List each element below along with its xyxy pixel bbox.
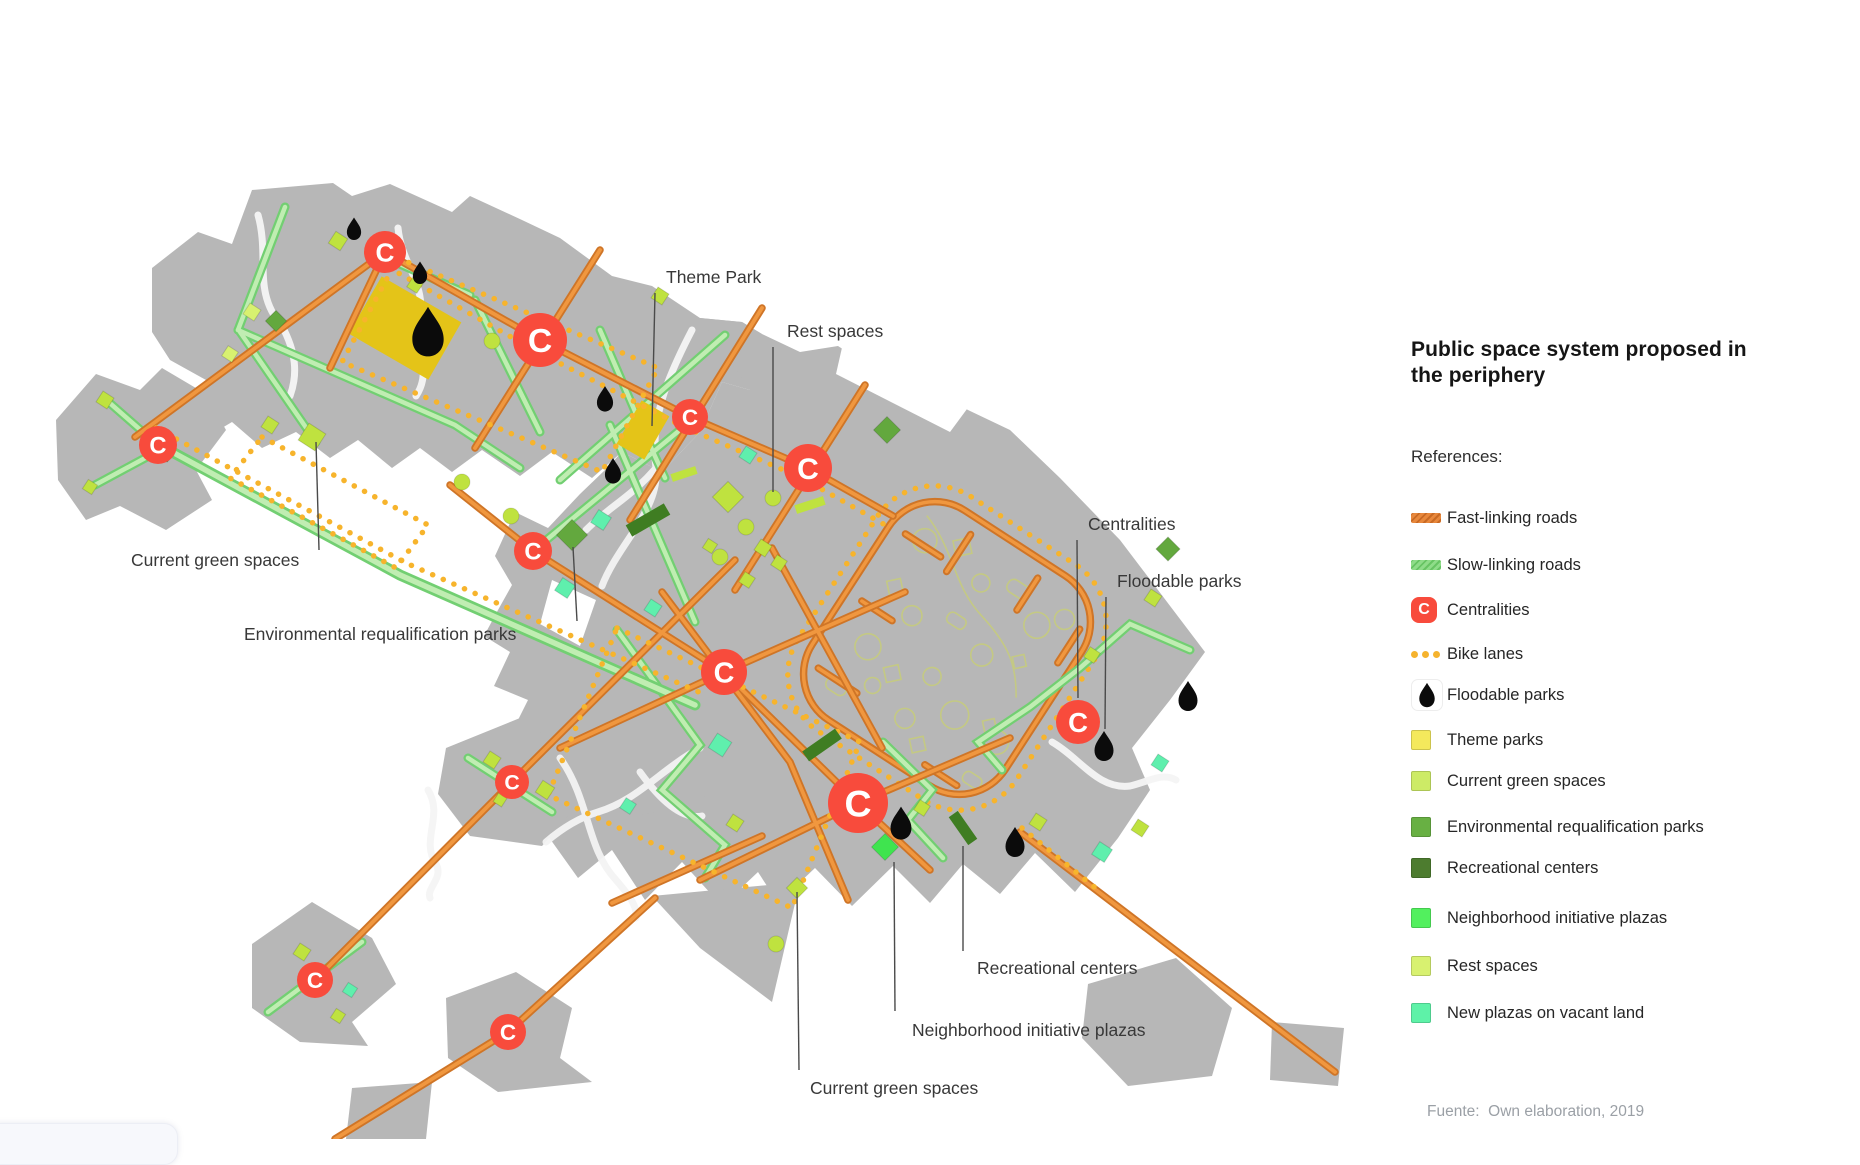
- square-swatch-box: [1411, 1003, 1447, 1023]
- road-swatch-box: [1411, 560, 1447, 570]
- legend-references-label: References:: [1411, 447, 1503, 467]
- legend-item-label: Current green spaces: [1447, 772, 1606, 791]
- annotation-leader-line: [1077, 540, 1078, 698]
- centrality-marker: C: [514, 532, 552, 570]
- environmental-park-square: [1156, 537, 1180, 561]
- centrality-letter: C: [149, 433, 166, 460]
- legend-item: Slow-linking roads: [1411, 550, 1581, 580]
- centrality-marker: C: [1056, 700, 1100, 744]
- legend-item-label: Centralities: [1447, 601, 1530, 620]
- legend-item-label: Bike lanes: [1447, 645, 1523, 664]
- road-swatch: [1411, 513, 1441, 523]
- centrality-letter: C: [376, 237, 395, 267]
- color-square-swatch: [1411, 771, 1431, 791]
- centrality-letter: C: [528, 322, 552, 360]
- green-space-node: [454, 474, 470, 490]
- map-annotation-label: Centralities: [1088, 514, 1176, 534]
- legend-item-label: Environmental requalification parks: [1447, 818, 1704, 837]
- centrality-letter: C: [844, 783, 871, 825]
- square-swatch-box: [1411, 817, 1447, 837]
- source-note: Fuente: Own elaboration, 2019: [1427, 1103, 1644, 1121]
- current-park-square: [1131, 819, 1149, 837]
- centrality-letter: C: [307, 968, 323, 993]
- green-space-node: [503, 508, 519, 524]
- legend-item-label: New plazas on vacant land: [1447, 1004, 1644, 1023]
- legend-item: Environmental requalification parks: [1411, 812, 1704, 842]
- legend-item: Rest spaces: [1411, 951, 1538, 981]
- legend-item-label: Recreational centers: [1447, 859, 1598, 878]
- badge-swatch-box: C: [1411, 597, 1447, 623]
- centrality-letter: C: [682, 405, 698, 430]
- square-swatch-box: [1411, 858, 1447, 878]
- legend-item: Recreational centers: [1411, 853, 1598, 883]
- square-swatch-box: [1411, 771, 1447, 791]
- bike-lane-dots-icon: [1411, 651, 1440, 658]
- centrality-marker: C: [828, 773, 888, 833]
- legend-item: Theme parks: [1411, 725, 1543, 755]
- centrality-marker: C: [139, 426, 177, 464]
- legend-item: Neighborhood initiative plazas: [1411, 903, 1667, 933]
- legend-item: Bike lanes: [1411, 639, 1523, 669]
- map-annotation-label: Recreational centers: [977, 958, 1138, 978]
- centrality-badge-icon: C: [1411, 597, 1437, 623]
- legend-item-label: Theme parks: [1447, 731, 1543, 750]
- centrality-marker: C: [701, 649, 747, 695]
- centrality-marker: C: [495, 765, 529, 799]
- legend-item-label: Rest spaces: [1447, 957, 1538, 976]
- square-swatch-box: [1411, 730, 1447, 750]
- legend-item: Current green spaces: [1411, 766, 1606, 796]
- legend-title: Public space system proposed in the peri…: [1411, 337, 1751, 388]
- road-swatch: [1411, 560, 1441, 570]
- floodable-park-marker: [1179, 681, 1198, 711]
- road-swatch-box: [1411, 513, 1447, 523]
- color-square-swatch: [1411, 956, 1431, 976]
- legend-panel: Public space system proposed in the peri…: [1411, 0, 1860, 1139]
- drop-swatch-box: [1411, 679, 1447, 711]
- centrality-letter: C: [524, 539, 541, 566]
- green-space-node: [712, 549, 728, 565]
- centrality-letter: C: [797, 453, 819, 486]
- annotation-leader-line: [797, 892, 799, 1070]
- centrality-marker: C: [672, 399, 708, 435]
- centrality-marker: C: [490, 1014, 526, 1050]
- map-annotation-label: Current green spaces: [131, 550, 300, 570]
- centrality-marker: C: [297, 962, 333, 998]
- centrality-letter: C: [714, 657, 735, 689]
- color-square-swatch: [1411, 858, 1431, 878]
- legend-item: Floodable parks: [1411, 680, 1564, 710]
- map-annotation-label: Current green spaces: [810, 1078, 979, 1098]
- centrality-marker: C: [513, 313, 567, 367]
- dots-swatch-box: [1411, 651, 1447, 658]
- green-space-node: [484, 333, 500, 349]
- green-space-node: [738, 519, 754, 535]
- map-annotation-label: Neighborhood initiative plazas: [912, 1020, 1146, 1040]
- square-swatch-box: [1411, 956, 1447, 976]
- legend-item-label: Floodable parks: [1447, 686, 1564, 705]
- annotation-leader-line: [894, 862, 895, 1011]
- legend-item: Fast-linking roads: [1411, 503, 1577, 533]
- legend-item: CCentralities: [1411, 595, 1530, 625]
- floodable-drop-icon: [1411, 679, 1443, 711]
- color-square-swatch: [1411, 730, 1431, 750]
- color-square-swatch: [1411, 908, 1431, 928]
- legend-item-label: Fast-linking roads: [1447, 509, 1577, 528]
- new_plaza-park-square: [1151, 754, 1169, 772]
- color-square-swatch: [1411, 817, 1431, 837]
- centrality-letter: C: [1068, 707, 1088, 738]
- green-space-node: [765, 490, 781, 506]
- square-swatch-box: [1411, 908, 1447, 928]
- legend-item-label: Neighborhood initiative plazas: [1447, 909, 1667, 928]
- centrality-letter: C: [500, 1020, 516, 1045]
- centrality-marker: C: [364, 231, 406, 273]
- map-annotation-label: Environmental requalification parks: [244, 624, 517, 644]
- legend-item: New plazas on vacant land: [1411, 998, 1644, 1028]
- map-annotation-label: Floodable parks: [1117, 571, 1242, 591]
- legend-item-label: Slow-linking roads: [1447, 556, 1581, 575]
- centrality-marker: C: [784, 444, 832, 492]
- centrality-letter: C: [504, 771, 519, 795]
- bottom-left-chip: [0, 1123, 178, 1165]
- map-annotation-label: Rest spaces: [787, 321, 884, 341]
- annotation-leader-line: [1105, 597, 1106, 729]
- green-space-node: [768, 936, 784, 952]
- map-annotation-label: Theme Park: [666, 267, 762, 287]
- color-square-swatch: [1411, 1003, 1431, 1023]
